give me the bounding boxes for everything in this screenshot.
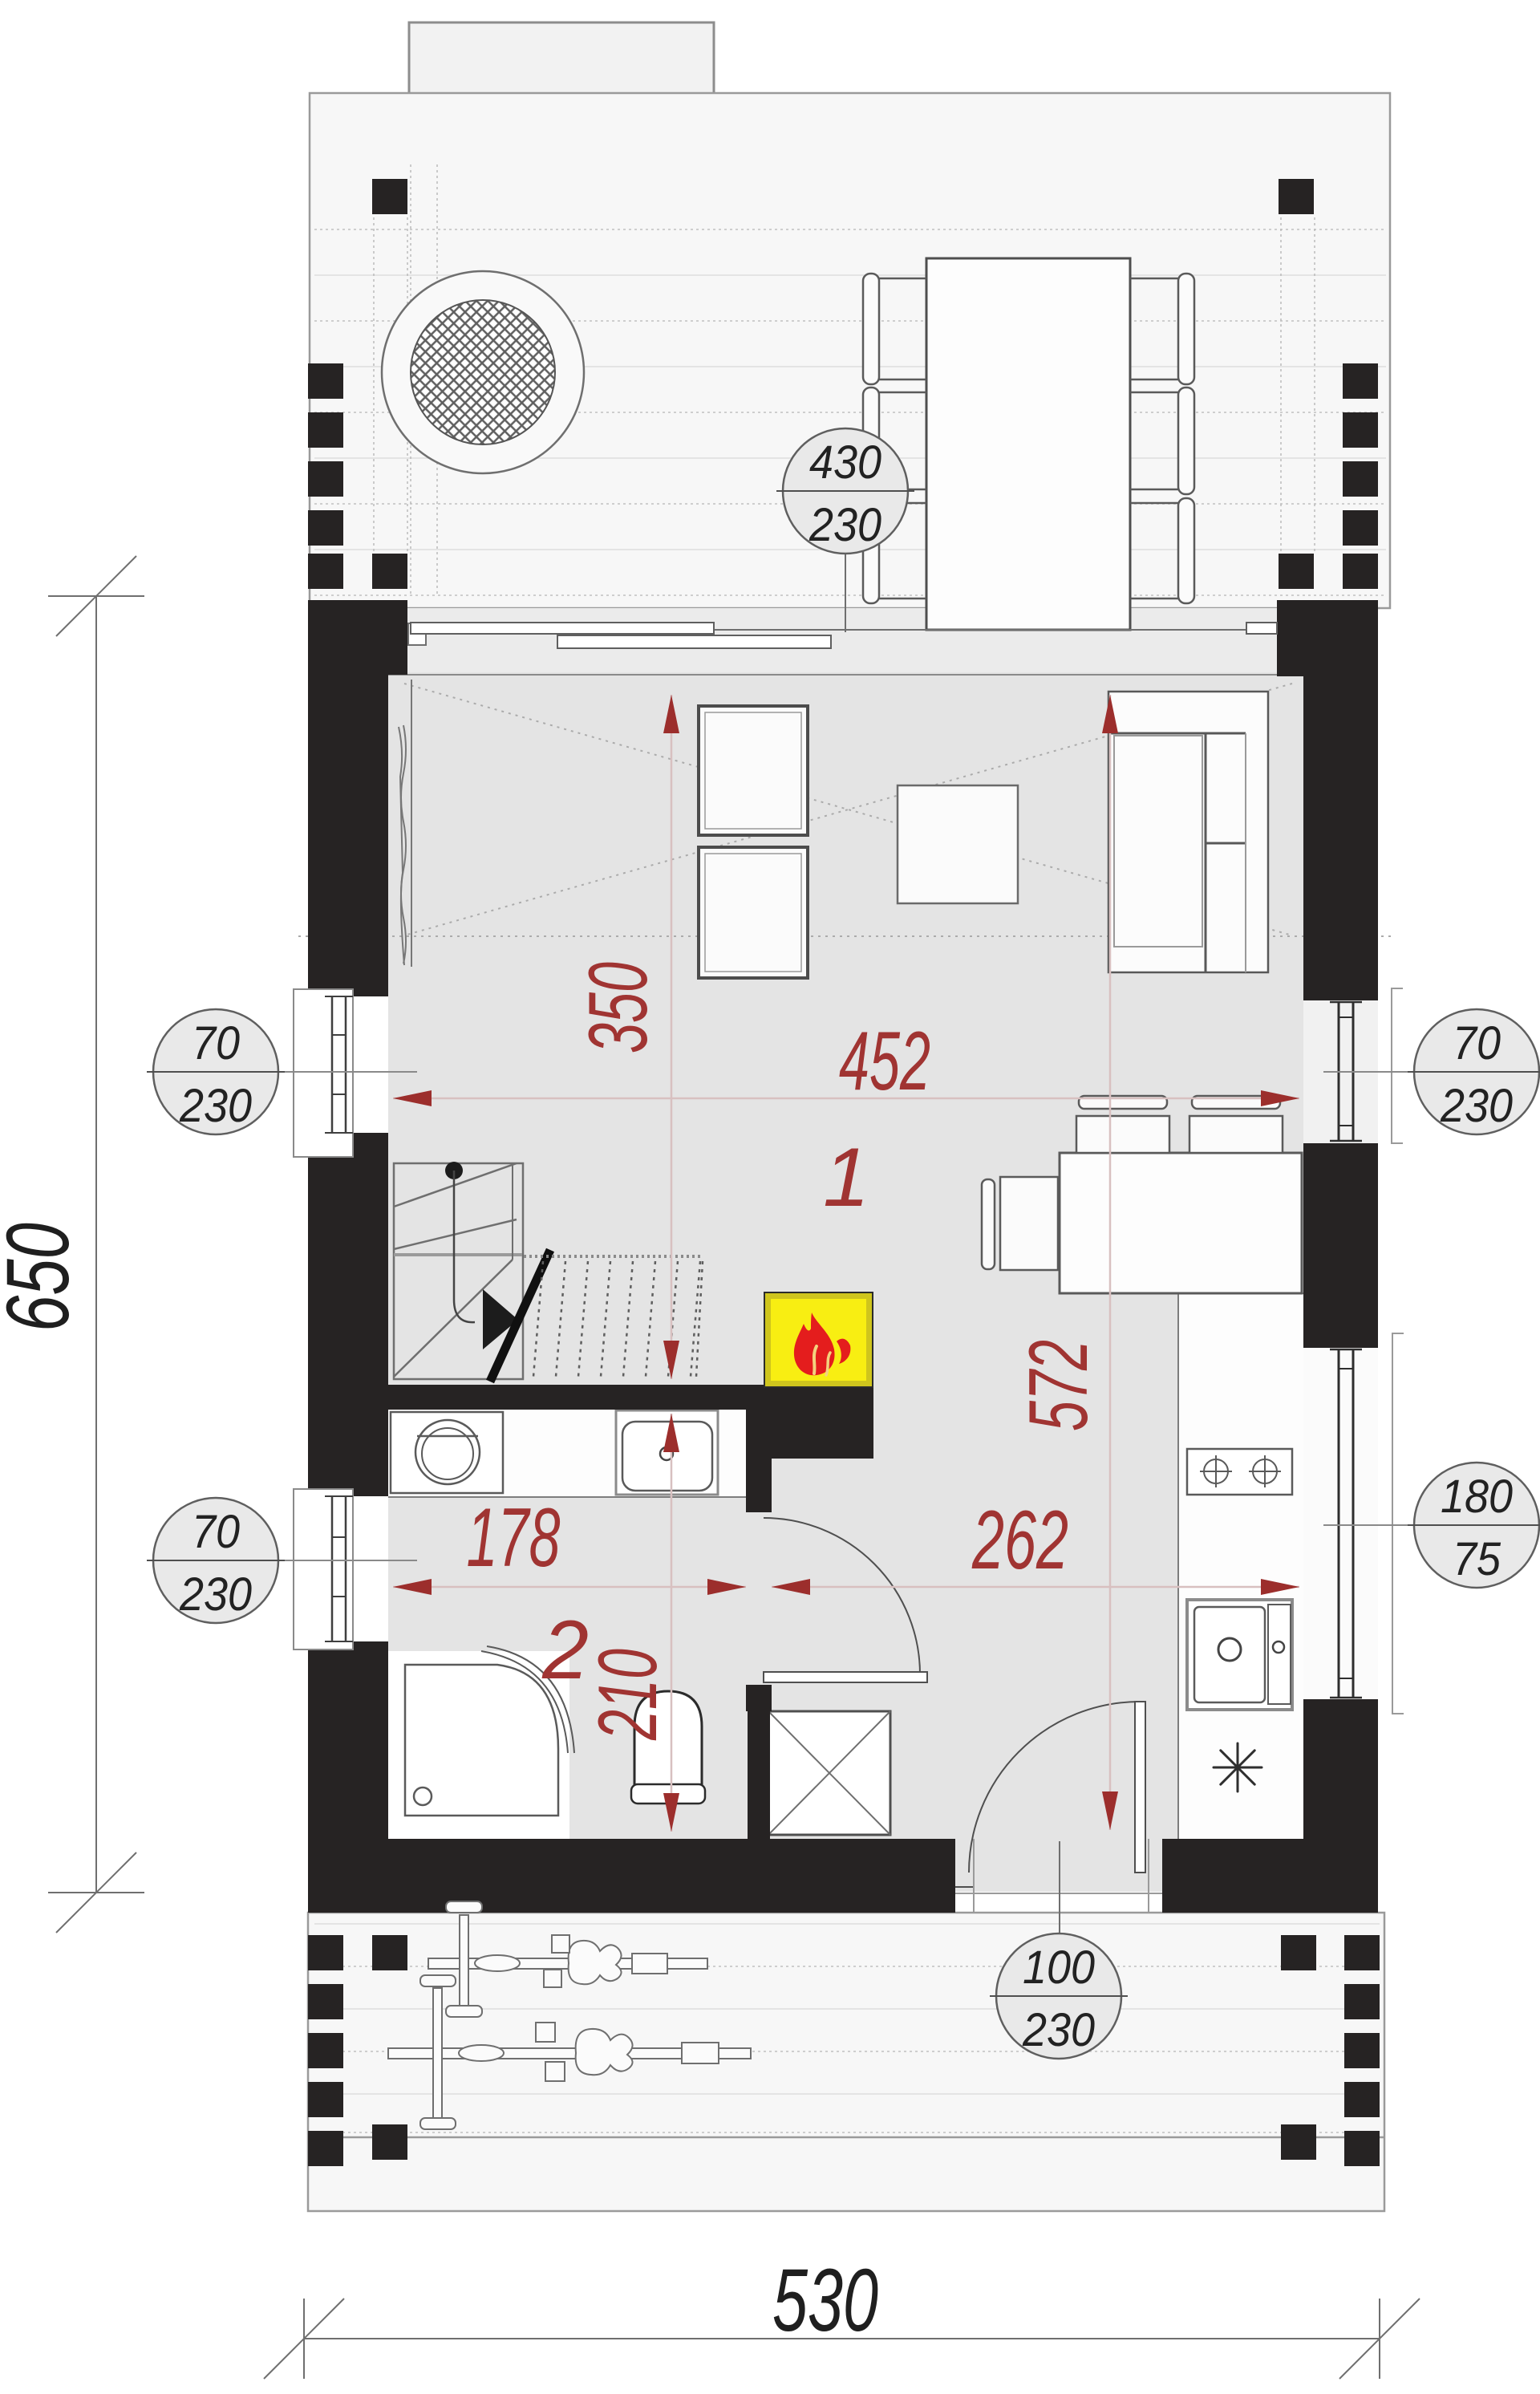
svg-text:650: 650 <box>0 1223 87 1332</box>
svg-text:262: 262 <box>971 1494 1068 1587</box>
svg-text:100: 100 <box>1023 1942 1095 1994</box>
svg-text:572: 572 <box>1012 1340 1105 1431</box>
svg-text:180: 180 <box>1441 1471 1513 1523</box>
svg-text:350: 350 <box>572 962 665 1053</box>
svg-text:70: 70 <box>192 1506 240 1558</box>
svg-text:530: 530 <box>772 2251 878 2350</box>
svg-text:75: 75 <box>1453 1533 1501 1585</box>
svg-text:70: 70 <box>192 1017 240 1069</box>
svg-text:210: 210 <box>582 1649 675 1741</box>
svg-text:2: 2 <box>541 1604 589 1697</box>
svg-text:230: 230 <box>179 1080 252 1132</box>
svg-text:452: 452 <box>839 1015 930 1108</box>
svg-text:230: 230 <box>808 499 881 551</box>
svg-text:230: 230 <box>179 1568 252 1621</box>
svg-text:230: 230 <box>1440 1080 1513 1132</box>
svg-text:178: 178 <box>467 1491 561 1585</box>
svg-text:230: 230 <box>1022 2004 1095 2056</box>
svg-text:430: 430 <box>809 436 881 489</box>
svg-text:1: 1 <box>823 1131 869 1224</box>
svg-text:70: 70 <box>1453 1017 1501 1069</box>
